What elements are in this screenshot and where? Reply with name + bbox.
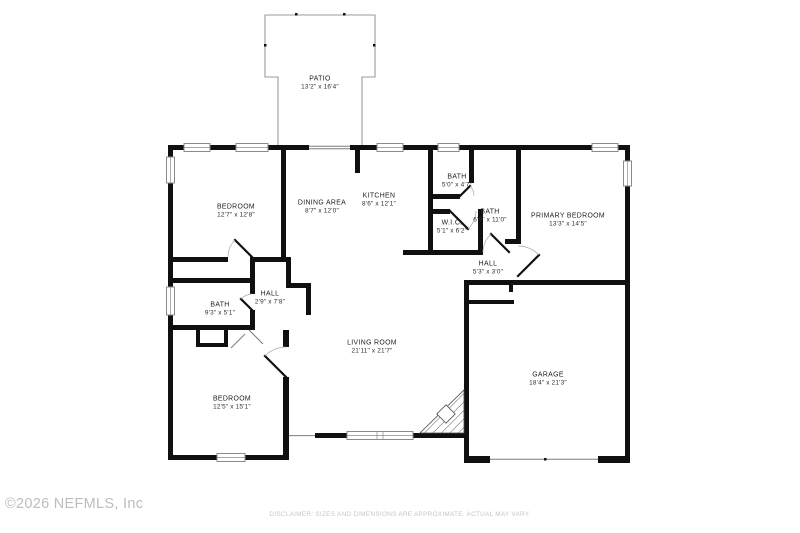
window xyxy=(184,144,210,152)
door-bedroom-1 xyxy=(228,240,252,257)
disclaimer-text: DISCLAIMER: SIZES AND DIMENSIONS ARE APP… xyxy=(0,511,800,518)
window xyxy=(592,144,618,152)
window xyxy=(167,287,175,315)
door-bedroom-2 xyxy=(265,347,286,377)
window xyxy=(624,161,632,186)
front-door-opening xyxy=(289,434,315,439)
copyright-watermark: ©2026 NEFMLS, Inc xyxy=(5,496,143,512)
closet-bifold-doors xyxy=(231,330,263,348)
sliding-door-window xyxy=(347,432,413,440)
window xyxy=(167,157,175,183)
patio-slider-opening xyxy=(309,145,350,151)
floorplan-drawing xyxy=(0,0,800,533)
walls-layer xyxy=(168,145,630,463)
windows-layer xyxy=(167,144,632,464)
door-bath-left xyxy=(241,294,252,310)
door-wic xyxy=(450,211,476,229)
garage-door-opening xyxy=(490,456,598,464)
door-bath-top xyxy=(460,186,474,196)
window xyxy=(217,454,245,462)
door-primary-bedroom xyxy=(518,246,539,276)
window xyxy=(377,144,403,152)
window xyxy=(236,144,268,152)
window xyxy=(438,144,459,152)
patio-outline xyxy=(264,13,376,145)
floorplan-page: PATIO13'2" x 16'4"BEDROOM12'7" x 12'8"DI… xyxy=(0,0,800,533)
fireplace-icon xyxy=(420,390,464,433)
